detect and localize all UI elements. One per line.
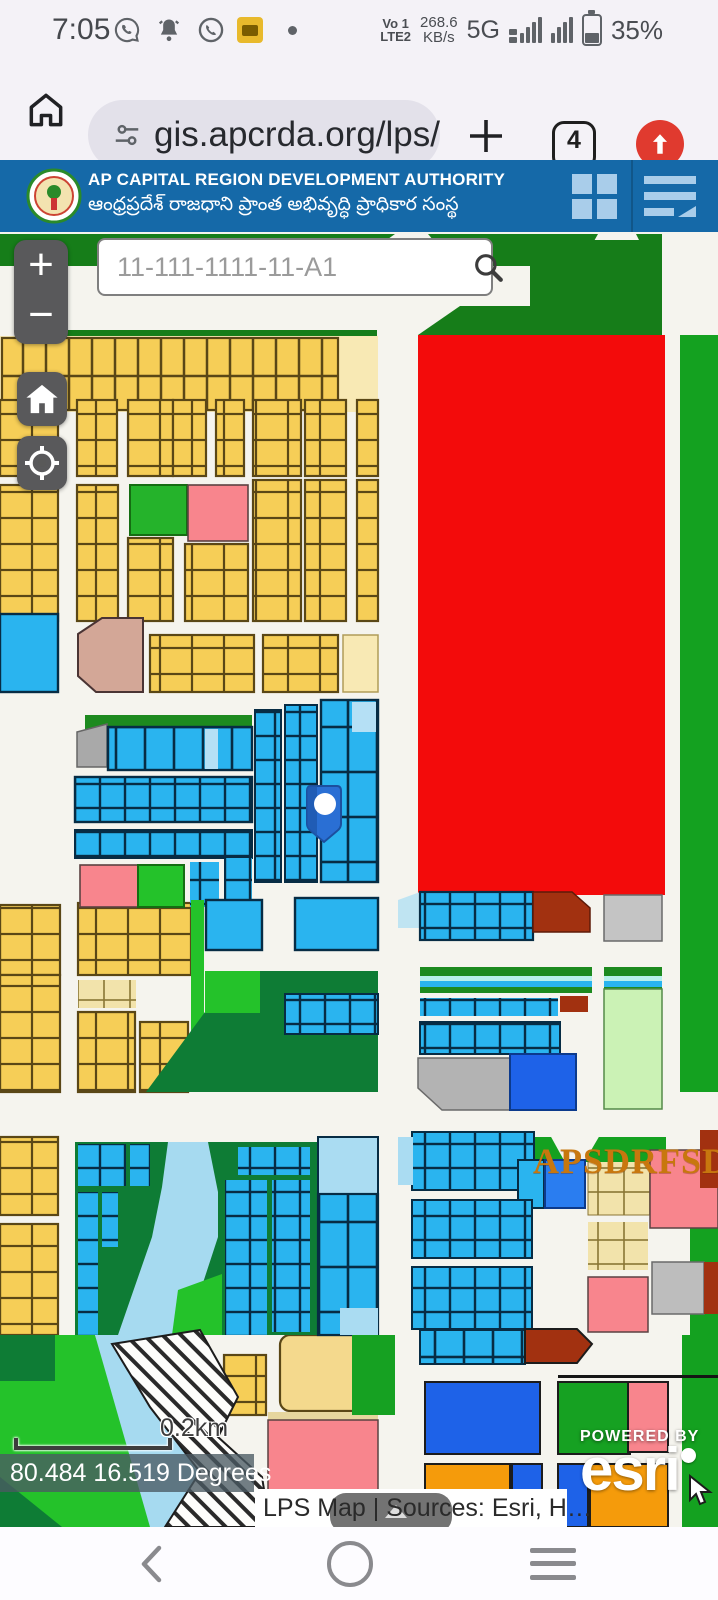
- menu-bar: [644, 208, 674, 216]
- mouse-cursor-icon: [688, 1474, 714, 1508]
- status-bar: 7:05 Vo 1 LTE2 268.6 KB/s 5G 35%: [0, 0, 718, 60]
- caller-app-icon: [197, 16, 225, 44]
- my-location-button[interactable]: [17, 436, 67, 490]
- signal-bars-2-icon: [551, 17, 573, 43]
- update-arrow-icon: [647, 131, 673, 157]
- search-icon: [471, 250, 505, 284]
- notification-bell-icon: [155, 16, 183, 44]
- esri-logo: POWERED BY esri: [580, 1428, 699, 1494]
- network-type: 5G: [467, 16, 500, 45]
- authority-title: AP CAPITAL REGION DEVELOPMENT AUTHORITY: [88, 170, 505, 190]
- lower-left-layer: [75, 1137, 378, 1335]
- tab-count: 4: [567, 126, 581, 155]
- esri-globe-icon: [681, 1448, 696, 1463]
- signal-bars-1-icon: [509, 17, 542, 43]
- zoom-out-button[interactable]: −: [14, 290, 68, 342]
- coordinates-readout: 80.484 16.519 Degrees: [0, 1454, 254, 1492]
- clock: 7:05: [52, 13, 110, 47]
- status-indicators: Vo 1 LTE2 268.6 KB/s 5G 35%: [380, 0, 663, 60]
- search-button[interactable]: [471, 240, 505, 294]
- apcrda-header: AP CAPITAL REGION DEVELOPMENT AUTHORITY …: [0, 160, 718, 232]
- parcel-search-bar: [97, 238, 493, 296]
- header-divider: [631, 160, 633, 232]
- authority-title-telugu: ఆంధ్రప్రదేశ్ రాజధాని ప్రాంత అభివృద్ధి ప్…: [88, 194, 459, 220]
- new-tab-button[interactable]: [462, 112, 510, 160]
- menu-triangle: [678, 206, 696, 217]
- whatsapp-icon: [113, 16, 141, 44]
- attribution-bar: LPS Map | Sources: Esri, H…: [255, 1489, 567, 1527]
- browser-toolbar: gis.apcrda.org/lps/ 4: [0, 60, 718, 160]
- phone-screen: 7:05 Vo 1 LTE2 268.6 KB/s 5G 35%: [0, 0, 718, 1600]
- menu-bar: [644, 176, 696, 184]
- location-marker-pin[interactable]: [303, 782, 345, 846]
- esri-wordmark: esri: [580, 1446, 679, 1494]
- nav-recents-button[interactable]: [530, 1548, 576, 1580]
- default-extent-button[interactable]: [17, 372, 67, 426]
- android-nav-bar: [0, 1527, 718, 1600]
- nav-back-button[interactable]: [138, 1544, 164, 1584]
- crosshair-icon: [24, 445, 60, 481]
- attribution-text: LPS Map | Sources: Esri, H…: [263, 1489, 592, 1527]
- data-speed: 268.6 KB/s: [420, 15, 458, 45]
- browser-home-button[interactable]: [24, 88, 68, 132]
- parcel-search-input[interactable]: [99, 240, 471, 294]
- site-settings-icon[interactable]: [112, 118, 142, 152]
- nav-home-button[interactable]: [327, 1541, 373, 1587]
- url-text: gis.apcrda.org/lps/: [154, 115, 440, 155]
- map-container: + − APSDRFSD 0.2km 80.484 16.5: [0, 232, 718, 1527]
- home-icon: [25, 383, 59, 415]
- gallery-app-icon: [237, 17, 263, 43]
- apps-grid-button[interactable]: [572, 174, 618, 220]
- battery-percent: 35%: [611, 15, 663, 46]
- zoom-in-button[interactable]: +: [14, 240, 68, 292]
- red-zone-layer: [418, 335, 665, 895]
- scale-bar: [14, 1438, 172, 1450]
- battery-icon: [582, 14, 602, 46]
- map-canvas[interactable]: [0, 232, 718, 1527]
- notification-dot-icon: [288, 26, 297, 35]
- apcrda-logo: [26, 168, 82, 224]
- right-mid-layer: [398, 892, 662, 1110]
- menu-bar: [644, 192, 696, 200]
- zoom-control: + −: [14, 240, 68, 344]
- volte-indicator: Vo 1 LTE2: [380, 17, 411, 43]
- layers-menu-button[interactable]: [644, 176, 696, 218]
- watermark-text: APSDRFSD: [533, 1140, 718, 1182]
